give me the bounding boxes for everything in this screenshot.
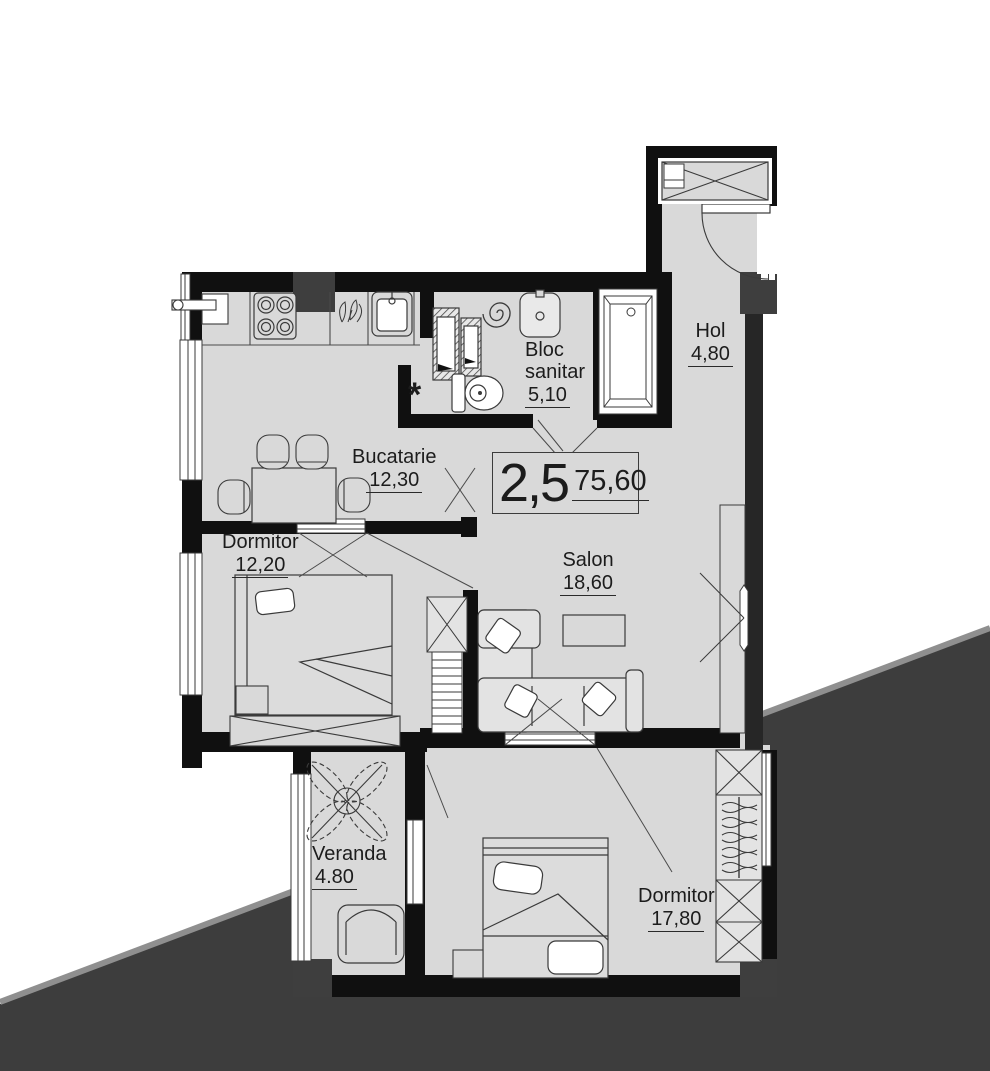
- dryer-icon: [461, 318, 481, 376]
- room-area: 12,20: [232, 554, 288, 578]
- window-veranda: [291, 774, 311, 961]
- room-name: Dormitor: [638, 885, 715, 907]
- room-area: 18,60: [560, 572, 616, 596]
- total-area-value: 75,60: [572, 465, 649, 501]
- room-area: 4,80: [688, 343, 733, 367]
- washing-machine-icon: [433, 308, 459, 380]
- room-area: 12,30: [366, 469, 422, 493]
- room-area: 17,80: [648, 908, 704, 932]
- shelf-unit-icon: [427, 597, 467, 733]
- hol-wardrobe-icon: [658, 158, 772, 204]
- bathtub-icon: [593, 283, 663, 420]
- window-left-2: [180, 553, 202, 695]
- kitchen-sink2-icon: [372, 292, 412, 336]
- nightstand1-icon: [236, 686, 268, 714]
- room-label-veranda: Veranda 4.80: [312, 843, 387, 890]
- room-label-bucatarie: Bucatarie 12,30: [352, 446, 437, 493]
- room-label-dormitor-mic: Dormitor 12,20: [222, 531, 299, 578]
- room-label-salon: Salon 18,60: [560, 549, 616, 596]
- dining-table-icon: [252, 468, 336, 523]
- room-area: 5,10: [525, 384, 570, 408]
- shaft-marker: *: [408, 376, 421, 415]
- room-name: Bucatarie: [352, 446, 437, 468]
- room-name-line2: sanitar: [525, 361, 585, 383]
- stove-icon: [254, 293, 296, 339]
- window-dormitor2-left: [407, 820, 423, 904]
- room-name-line1: Bloc: [525, 339, 585, 361]
- room-name: Dormitor: [222, 531, 299, 553]
- floor-plan-drawing: [0, 0, 990, 1071]
- rooms-count-value: 2,5: [499, 456, 568, 510]
- room-label-bloc-sanitar: Bloc sanitar 5,10: [525, 339, 585, 408]
- floor-plan-page: Bucatarie 12,30 Dormitor 12,20 Bloc sani…: [0, 0, 990, 1071]
- nightstand2-icon: [453, 950, 483, 978]
- room-label-dormitor-mare: Dormitor 17,80: [638, 885, 715, 932]
- washbasin-icon: [520, 290, 560, 337]
- window-dormitor2-right: [762, 753, 771, 866]
- window-left-1: [180, 340, 202, 480]
- room-label-hol: Hol 4,80: [688, 320, 733, 367]
- hinge-mark: [769, 273, 775, 280]
- closet1-icon: [230, 716, 400, 746]
- room-area: 4.80: [312, 866, 357, 890]
- room-name: Hol: [688, 320, 733, 342]
- veranda-armchair-icon: [338, 905, 404, 963]
- bed2-icon: [483, 838, 608, 978]
- wardrobe2-icon: [716, 750, 762, 962]
- apartment-type-box: 2,5 75,60: [492, 452, 639, 514]
- room-name: Veranda: [312, 843, 387, 865]
- room-name: Salon: [560, 549, 616, 571]
- entry-door-opening: [757, 206, 777, 274]
- toilet-icon: [452, 374, 503, 412]
- vent-shaft: [293, 272, 335, 312]
